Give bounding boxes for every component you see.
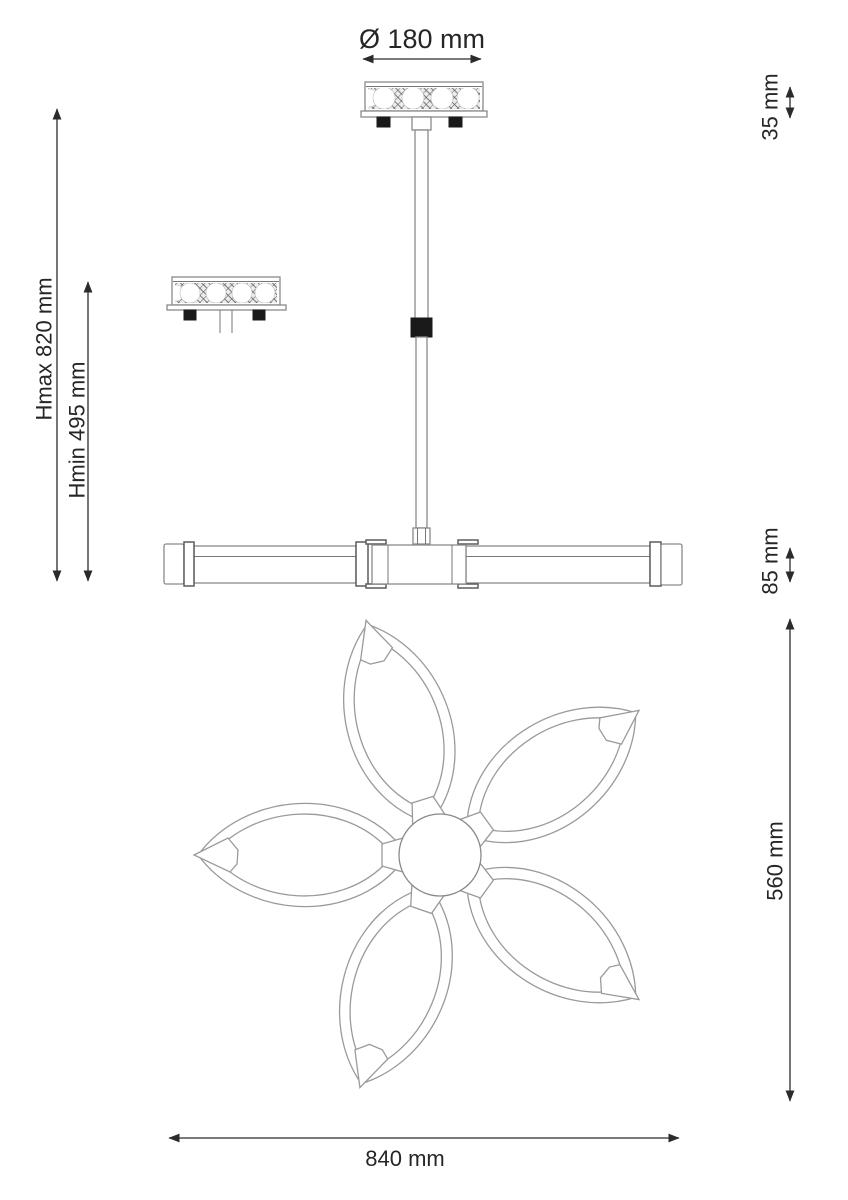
canopy-side-view-small (167, 277, 286, 333)
crystal (232, 283, 252, 303)
bar-left-tube (194, 546, 356, 583)
canopy-height-label: 35 mm (758, 73, 783, 140)
canopy-base-plate (361, 111, 487, 117)
rod-top-joint (412, 117, 431, 130)
flower-center-disc (399, 814, 481, 896)
bar-right-collar (650, 542, 661, 586)
flower-depth-label: 560 mm (763, 821, 788, 900)
bar-left-end-cap (164, 544, 184, 584)
crystal (431, 87, 453, 109)
technical-drawing-page: Ø 180 mm 35 mm (0, 0, 848, 1200)
rod-lower-section (416, 337, 427, 528)
crystal (373, 87, 395, 109)
crystal (206, 283, 226, 303)
dim-canopy-height: 35 mm (758, 73, 791, 140)
bar-center-left-collar (356, 542, 368, 586)
bar-left-collar (184, 542, 194, 586)
canopy-foot-right (449, 117, 462, 127)
lamp-bar-side-view (164, 540, 682, 588)
crystal (255, 283, 275, 303)
height-max-label: Hmax 820 mm (32, 277, 57, 420)
dim-flower-width: 840 mm (169, 1138, 679, 1171)
small-canopy-foot-right (253, 310, 265, 320)
dim-flower-depth: 560 mm (763, 619, 791, 1101)
crystal (180, 283, 200, 303)
bar-center-lip (366, 540, 386, 544)
bar-right-end-cap (661, 544, 682, 585)
dim-height-max: Hmax 820 mm (32, 109, 58, 581)
bar-right-tube (466, 546, 650, 583)
lamp-dimension-drawing: Ø 180 mm 35 mm (0, 0, 848, 1200)
rod-telescopic-connector (411, 318, 432, 337)
small-canopy-foot-left (184, 310, 196, 320)
flower-petal (194, 803, 403, 906)
height-min-label: Hmin 495 mm (65, 362, 90, 499)
small-canopy-crystal-band (168, 283, 277, 303)
bar-center-lip (458, 540, 478, 544)
rod-bottom-joint (413, 528, 430, 544)
body-height-label: 85 mm (758, 527, 783, 594)
flower-bottom-view (194, 605, 669, 1105)
dim-canopy-diameter: Ø 180 mm (359, 24, 485, 59)
rod-upper-section (415, 130, 428, 319)
canopy-diameter-label: Ø 180 mm (359, 24, 485, 54)
small-canopy-base-plate (167, 305, 286, 310)
suspension-rod (411, 117, 432, 544)
flower-width-label: 840 mm (365, 1146, 444, 1171)
dim-body-height: 85 mm (758, 527, 791, 594)
flower-petal (317, 605, 478, 835)
canopy-crystal-band (360, 87, 480, 109)
crystal (402, 87, 424, 109)
flower-petal (311, 873, 477, 1104)
crystal (457, 87, 479, 109)
dim-height-min: Hmin 495 mm (65, 282, 90, 581)
canopy-foot-left (377, 117, 390, 127)
